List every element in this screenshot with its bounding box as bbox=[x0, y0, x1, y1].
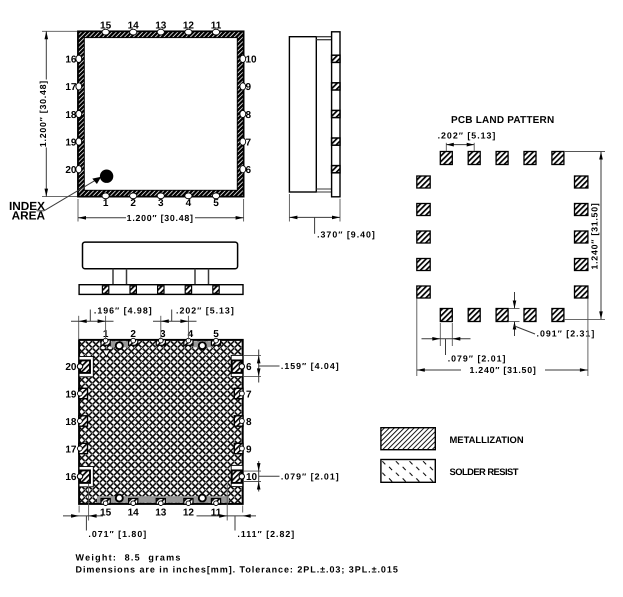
svg-text:19: 19 bbox=[65, 389, 77, 400]
svg-text:18: 18 bbox=[65, 417, 77, 428]
svg-text:17: 17 bbox=[65, 82, 77, 93]
svg-text:.111″ [2.82]: .111″ [2.82] bbox=[237, 529, 295, 539]
svg-text:11: 11 bbox=[211, 20, 222, 31]
svg-text:12: 12 bbox=[183, 20, 195, 31]
svg-text:.091″ [2.31]: .091″ [2.31] bbox=[537, 329, 596, 339]
svg-text:20: 20 bbox=[65, 165, 77, 176]
svg-text:8: 8 bbox=[246, 110, 252, 121]
svg-text:13: 13 bbox=[155, 507, 167, 518]
svg-text:7: 7 bbox=[246, 389, 252, 400]
svg-text:20: 20 bbox=[65, 362, 77, 373]
svg-text:6: 6 bbox=[246, 362, 252, 373]
svg-text:.202″ [5.13]: .202″ [5.13] bbox=[176, 306, 235, 316]
svg-text:Weight: 8.5 grams: Weight: 8.5 grams bbox=[76, 553, 182, 563]
svg-text:9: 9 bbox=[246, 82, 252, 93]
svg-text:10: 10 bbox=[246, 55, 258, 66]
svg-text:5: 5 bbox=[213, 198, 219, 209]
svg-text:19: 19 bbox=[65, 137, 77, 148]
svg-text:14: 14 bbox=[128, 20, 140, 31]
svg-text:6: 6 bbox=[246, 165, 252, 176]
svg-text:Dimensions are in inches[mm].: Dimensions are in inches[mm]. Tolerance:… bbox=[76, 565, 399, 575]
svg-text:.159″ [4.04]: .159″ [4.04] bbox=[281, 361, 340, 371]
svg-text:3: 3 bbox=[158, 198, 164, 209]
svg-text:7: 7 bbox=[246, 137, 252, 148]
svg-text:.079″ [2.01]: .079″ [2.01] bbox=[281, 472, 340, 482]
svg-text:15: 15 bbox=[100, 20, 112, 31]
svg-text:.196″ [4.98]: .196″ [4.98] bbox=[94, 306, 153, 316]
svg-text:13: 13 bbox=[155, 20, 167, 31]
svg-text:.370″ [9.40]: .370″ [9.40] bbox=[317, 229, 376, 239]
svg-text:METALLIZATION: METALLIZATION bbox=[450, 434, 524, 445]
svg-text:2: 2 bbox=[130, 329, 136, 340]
svg-text:9: 9 bbox=[246, 444, 252, 455]
svg-text:12: 12 bbox=[183, 507, 195, 518]
svg-text:1.200″ [30.48]: 1.200″ [30.48] bbox=[127, 213, 194, 223]
svg-text:SOLDER RESIST: SOLDER RESIST bbox=[450, 466, 519, 477]
svg-text:1: 1 bbox=[103, 198, 109, 209]
svg-text:1.240″ [31.50]: 1.240″ [31.50] bbox=[589, 202, 599, 269]
svg-text:PCB LAND PATTERN: PCB LAND PATTERN bbox=[451, 115, 554, 126]
svg-text:AREA: AREA bbox=[12, 209, 46, 223]
svg-text:.202″ [5.13]: .202″ [5.13] bbox=[438, 130, 497, 140]
svg-text:14: 14 bbox=[128, 507, 140, 518]
svg-text:16: 16 bbox=[65, 55, 77, 66]
svg-text:.071″ [1.80]: .071″ [1.80] bbox=[88, 529, 147, 539]
svg-text:.079″ [2.01]: .079″ [2.01] bbox=[448, 353, 507, 363]
svg-text:8: 8 bbox=[246, 417, 252, 428]
svg-text:2: 2 bbox=[130, 198, 136, 209]
svg-text:17: 17 bbox=[65, 444, 77, 455]
svg-text:5: 5 bbox=[213, 329, 219, 340]
svg-text:4: 4 bbox=[186, 198, 192, 209]
svg-text:16: 16 bbox=[65, 472, 77, 483]
svg-text:15: 15 bbox=[100, 507, 112, 518]
svg-text:1.240″ [31.50]: 1.240″ [31.50] bbox=[469, 365, 536, 375]
svg-text:18: 18 bbox=[65, 110, 77, 121]
svg-text:1.200″ [30.48]: 1.200″ [30.48] bbox=[38, 80, 48, 147]
